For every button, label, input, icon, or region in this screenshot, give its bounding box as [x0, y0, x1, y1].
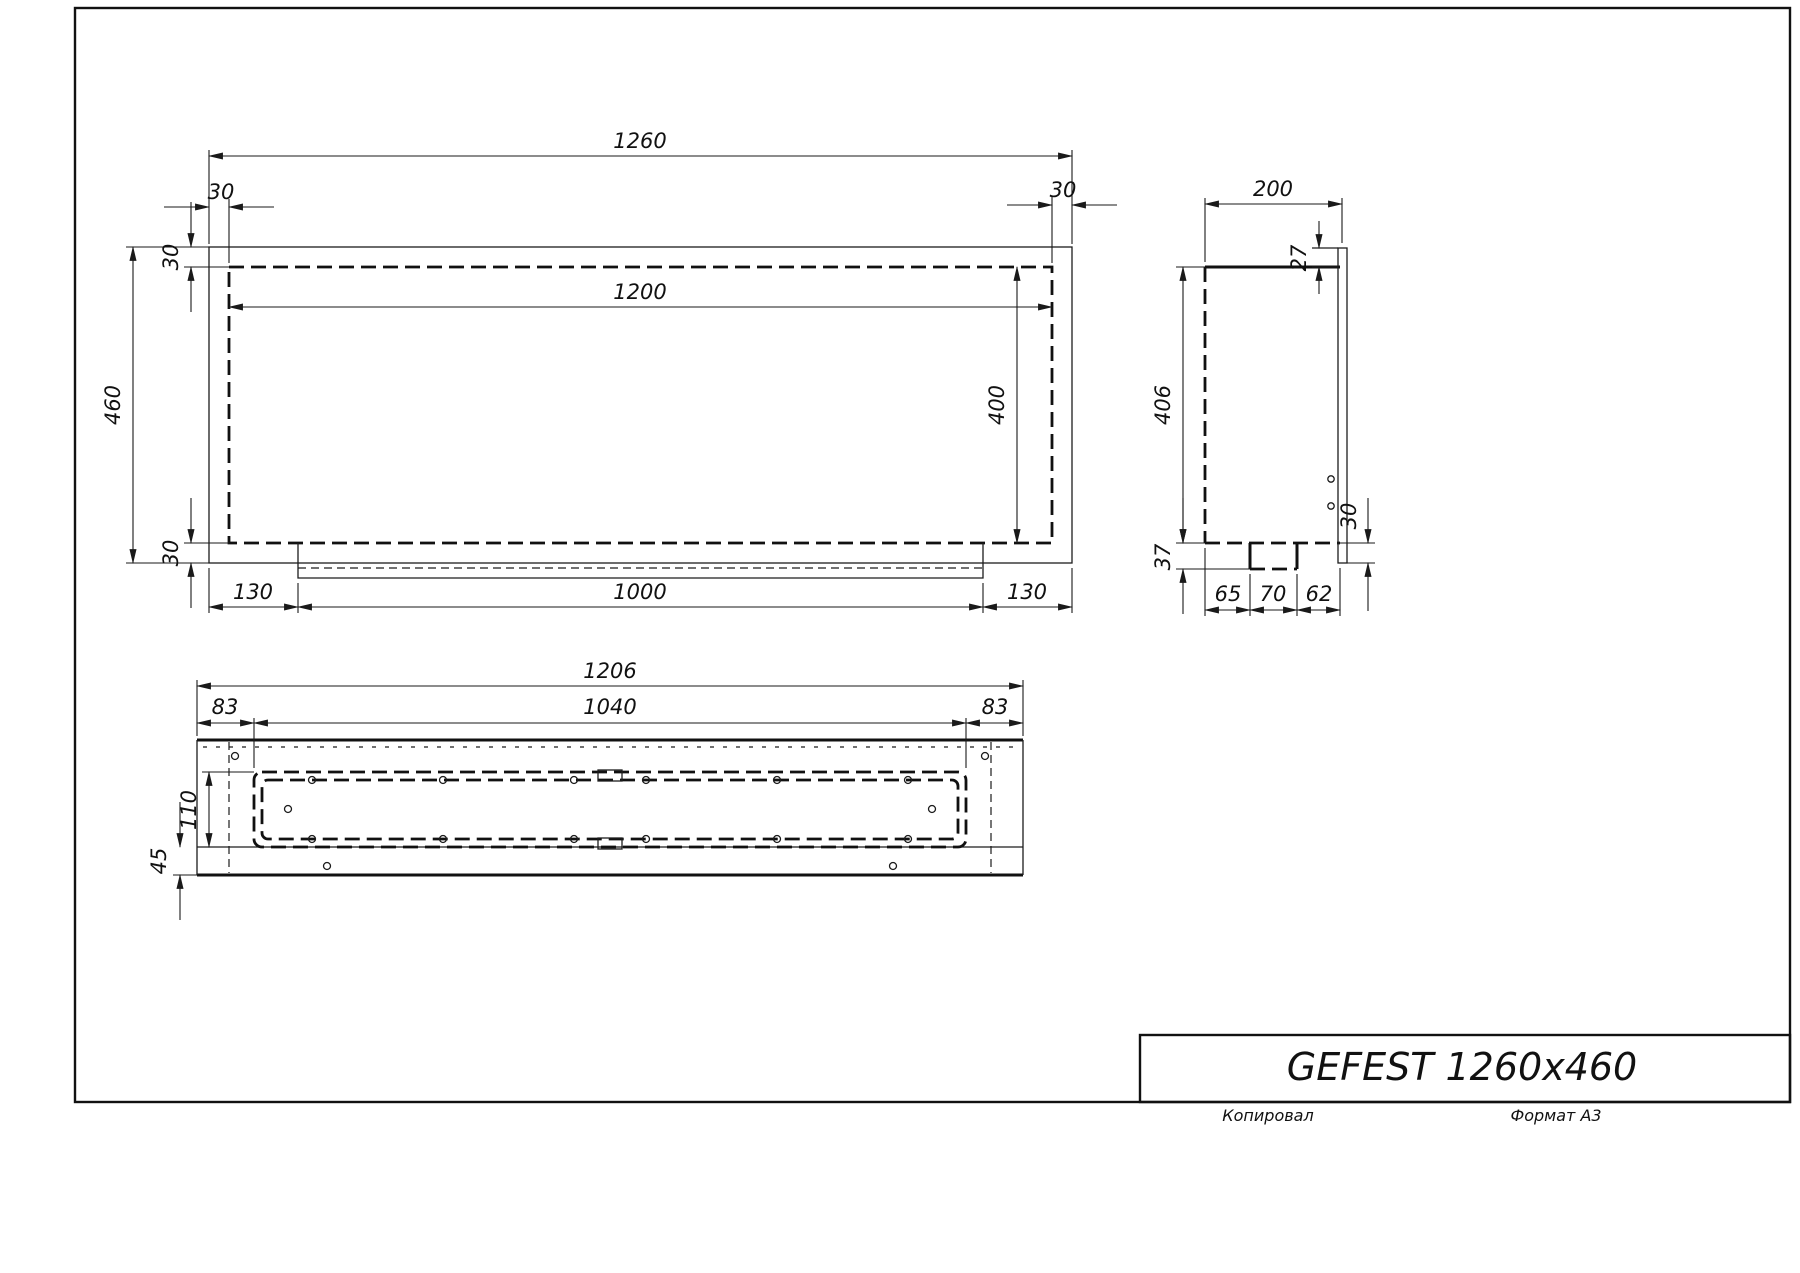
dim-bottom-front-offset: 45	[147, 848, 171, 875]
dim-front-bottom-left: 130	[233, 580, 273, 604]
dim-side-seg-left: 65	[1215, 582, 1242, 606]
dim-side-seg-center: 70	[1260, 582, 1287, 606]
dim-front-inner-height: 400	[985, 385, 1009, 425]
dim-front-offset-top-left: 30	[208, 180, 235, 204]
technical-drawing: GEFEST 1260x460 Копировал Формат А3	[0, 0, 1800, 1273]
dim-side-flange-top: 27	[1287, 244, 1311, 271]
dim-side-seg-right: 62	[1306, 582, 1333, 606]
dim-side-body-height: 406	[1151, 385, 1175, 425]
drawing-sheet: GEFEST 1260x460 Копировал Формат А3	[0, 0, 1800, 1273]
dim-front-overall-width: 1260	[613, 129, 666, 153]
footer-format-label: Формат А3	[1510, 1106, 1601, 1125]
dim-side-flange-bottom: 30	[1337, 503, 1361, 530]
dim-bottom-margin-right: 83	[982, 695, 1009, 719]
footer-copied-label: Копировал	[1222, 1106, 1313, 1125]
dim-front-burner-width: 1000	[613, 580, 666, 604]
dim-bottom-margin-left: 83	[212, 695, 239, 719]
drawing-title: GEFEST 1260x460	[1287, 1045, 1637, 1089]
dim-bottom-opening-width: 1040	[583, 695, 636, 719]
dim-front-bottom-right: 130	[1007, 580, 1047, 604]
dim-side-depth: 200	[1253, 177, 1293, 201]
dim-front-flange-top: 30	[159, 244, 183, 271]
dim-front-offset-top-right: 30	[1050, 178, 1077, 202]
dim-bottom-overall-width: 1206	[583, 659, 636, 683]
dim-side-tray-depth: 37	[1151, 543, 1175, 570]
dim-front-flange-bottom: 30	[159, 540, 183, 567]
dim-front-overall-height: 460	[101, 385, 125, 425]
dim-front-inner-width: 1200	[613, 280, 666, 304]
dim-bottom-opening-depth: 110	[177, 790, 201, 830]
